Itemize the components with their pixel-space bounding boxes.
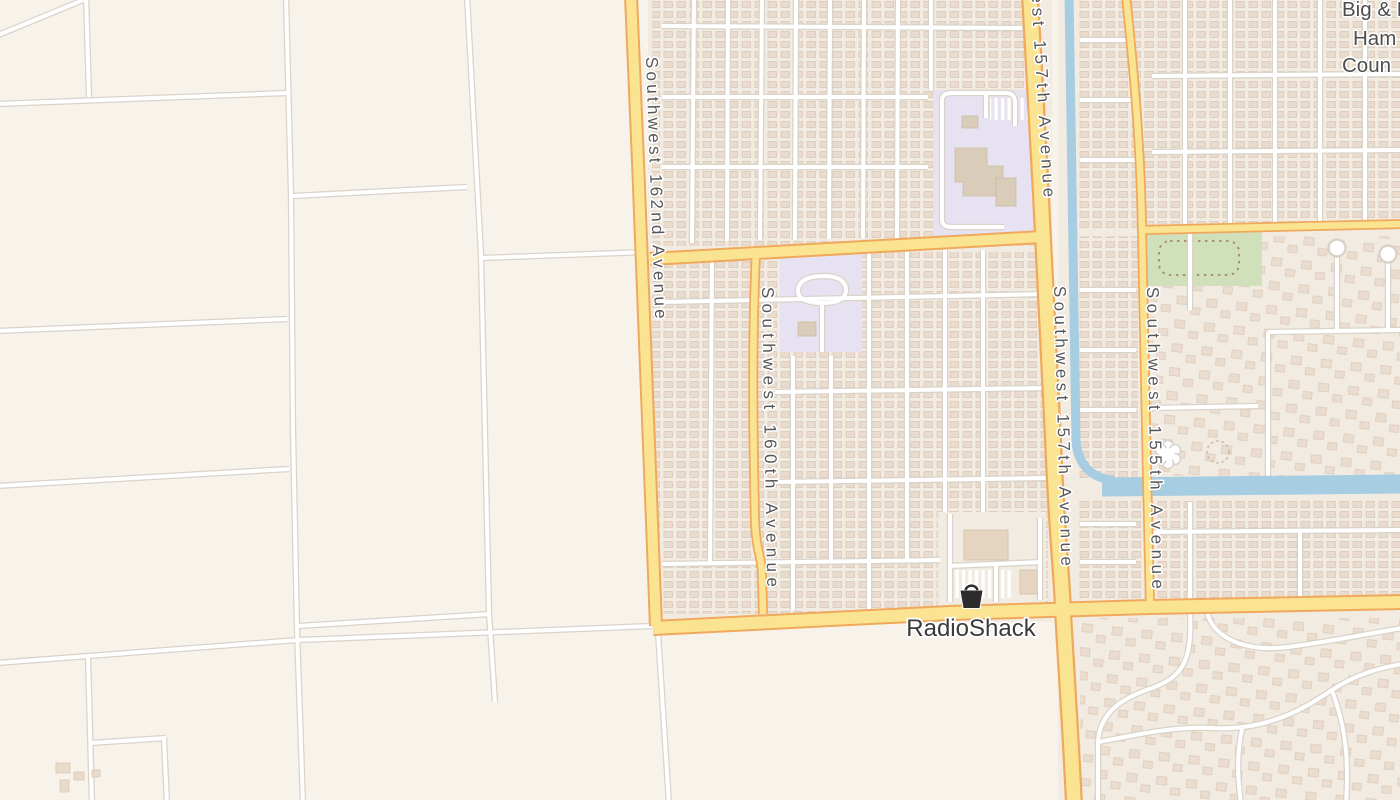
school-parking-rows: [990, 98, 1028, 120]
park-area: [1146, 232, 1262, 286]
clipped-place-label-line1: Big & Lit: [1342, 0, 1400, 21]
map-canvas[interactable]: Southwest 162nd Avenue Southwest 157th A…: [0, 0, 1400, 800]
clipped-place-label-line3: Coun: [1342, 54, 1391, 77]
map-svg: Southwest 162nd Avenue Southwest 157th A…: [0, 0, 1400, 800]
cul-de-sac: [1380, 246, 1397, 263]
clipped-place-label-line2: Ham: [1353, 27, 1396, 50]
shopping-plaza: [938, 512, 1046, 606]
poi-radioshack-label: RadioShack: [906, 615, 1036, 642]
cul-de-sac: [1329, 240, 1346, 257]
